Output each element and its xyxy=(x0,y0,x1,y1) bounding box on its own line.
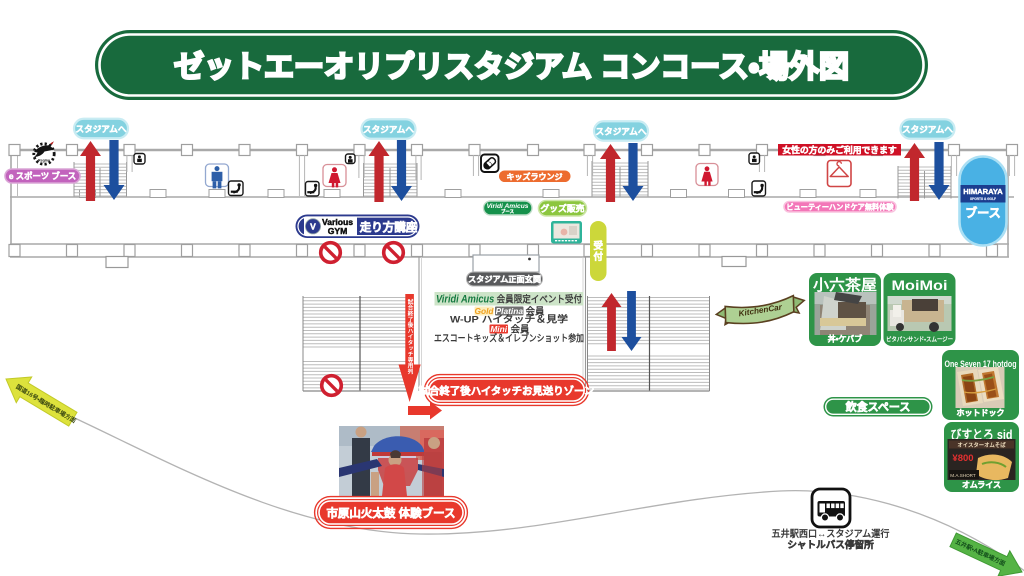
svg-text:グッズ販売: グッズ販売 xyxy=(541,202,585,213)
svg-text:走り方講座: 走り方講座 xyxy=(359,220,418,234)
svg-text:市原山火太鼓 体験ブース: 市原山火太鼓 体験ブース xyxy=(326,506,455,520)
svg-text:スタジアム正面玄関: スタジアム正面玄関 xyxy=(468,274,541,284)
svg-text:五井駅西口↔スタジアム運行: 五井駅西口↔スタジアム運行 xyxy=(772,528,890,540)
svg-text:V: V xyxy=(310,221,316,231)
svg-text:MoiMoi: MoiMoi xyxy=(892,277,948,293)
svg-text:キッズラウンジ: キッズラウンジ xyxy=(507,171,563,181)
svg-text:スタジアムへ: スタジアムへ xyxy=(596,125,647,136)
svg-text:オイスターオムそば: オイスターオムそば xyxy=(957,441,1006,449)
svg-text:¥800: ¥800 xyxy=(952,453,973,464)
svg-text:W-UP ハイタッチ＆見学: W-UP ハイタッチ＆見学 xyxy=(450,314,569,325)
svg-text:M.A.SHORT: M.A.SHORT xyxy=(950,473,976,478)
svg-text:女性の方のみご利用できます: 女性の方のみご利用できます xyxy=(782,144,897,155)
svg-text:小六茶屋: 小六茶屋 xyxy=(813,276,877,294)
svg-text:スタジアムへ: スタジアムへ xyxy=(76,123,127,134)
svg-text:シャトルバス停留所: シャトルバス停留所 xyxy=(787,539,874,551)
svg-text:付: 付 xyxy=(594,251,604,263)
svg-text:飲食スペース: 飲食スペース xyxy=(845,400,911,414)
svg-text:HIMARAYA: HIMARAYA xyxy=(963,187,1003,196)
svg-text:ビューティーハンドケア無料体験: ビューティーハンドケア無料体験 xyxy=(786,202,894,211)
svg-text:Viridi Amicus 会員限定イベント受付: Viridi Amicus 会員限定イベント受付 xyxy=(436,293,582,306)
svg-text:GYM: GYM xyxy=(328,226,348,236)
svg-text:ブース: ブース xyxy=(965,205,1000,220)
svg-text:試合終了後ハイタッチお見送りゾーン: 試合終了後ハイタッチお見送りゾーン xyxy=(419,385,595,398)
svg-text:ホットドック: ホットドック xyxy=(957,408,1005,418)
svg-text:丼・ケバブ: 丼・ケバブ xyxy=(828,334,862,344)
svg-text:ピタパンサンド・スムージー: ピタパンサンド・スムージー xyxy=(886,336,953,344)
svg-text:受: 受 xyxy=(594,240,604,252)
svg-text:ゼットエーオリプリスタジアム コンコース・場外図: ゼットエーオリプリスタジアム コンコース・場外図 xyxy=(174,51,849,84)
svg-text:スタジアムへ: スタジアムへ xyxy=(363,123,414,134)
svg-text:オムライス: オムライス xyxy=(962,481,1001,490)
svg-text:e スポーツ ブース: e スポーツ ブース xyxy=(9,171,76,181)
svg-text:SPORTS & GOLF: SPORTS & GOLF xyxy=(970,197,996,201)
svg-text:Regina: Regina xyxy=(38,159,51,163)
svg-text:スタジアムへ: スタジアムへ xyxy=(902,123,953,134)
svg-text:エスコートキッズ＆イレブンショット参加: エスコートキッズ＆イレブンショット参加 xyxy=(434,333,584,344)
svg-text:ブース: ブース xyxy=(501,208,515,215)
